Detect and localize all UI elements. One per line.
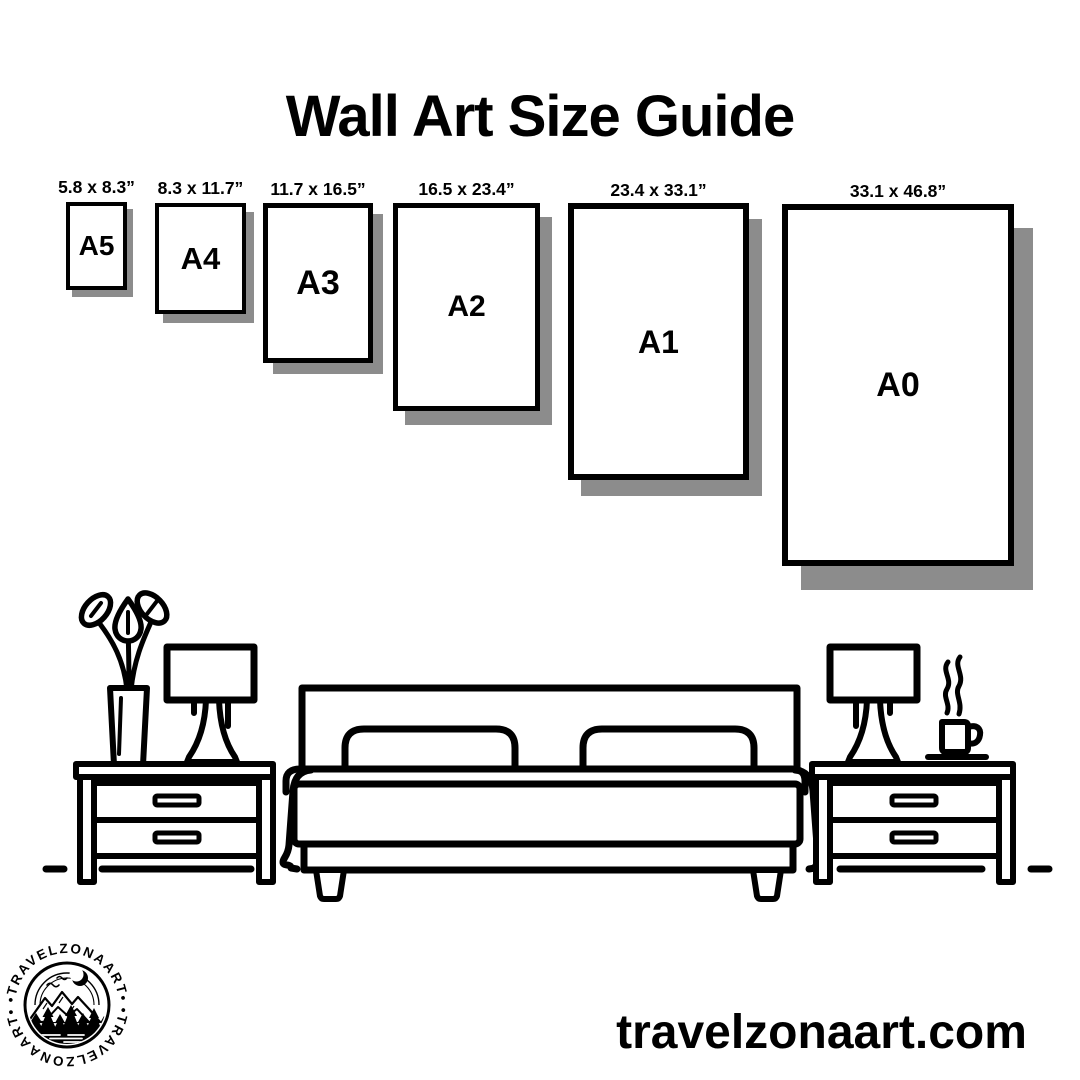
coffee-cup-icon [928, 657, 986, 757]
dimension-label: 8.3 x 11.7” [158, 178, 244, 199]
logo-badge-icon: •TRAVELZONAART• •TRAVELZONAART• [0, 935, 136, 1075]
drawer-handle [155, 833, 199, 842]
dimension-label: 33.1 x 46.8” [850, 181, 946, 202]
size-frame-a4: 8.3 x 11.7” A4 [155, 203, 246, 314]
size-frame-a0: 33.1 x 46.8” A0 [782, 204, 1014, 566]
bedroom-illustration [0, 570, 1080, 910]
brand-website: travelzonaart.com [563, 1005, 1080, 1060]
size-frame-a3: 11.7 x 16.5” A3 [263, 203, 373, 363]
page-title: Wall Art Size Guide [0, 83, 1080, 150]
size-frame-a2: 16.5 x 23.4” A2 [393, 203, 540, 411]
size-letter: A1 [638, 326, 679, 358]
bed-icon [283, 688, 823, 899]
dimension-label: 23.4 x 33.1” [610, 180, 706, 201]
dimension-label: 11.7 x 16.5” [270, 179, 365, 200]
table-lamp-icon [167, 647, 254, 762]
size-letter: A3 [296, 266, 339, 300]
dimension-label: 16.5 x 23.4” [418, 179, 514, 200]
size-frame-a5: 5.8 x 8.3” A5 [66, 202, 127, 290]
dimension-label: 5.8 x 8.3” [58, 177, 135, 198]
size-letter: A0 [876, 368, 919, 402]
nightstand-left-icon [76, 764, 273, 882]
size-frame-a1: 23.4 x 33.1” A1 [568, 203, 749, 480]
size-letter: A5 [79, 232, 115, 260]
drawer-handle [892, 833, 936, 842]
table-lamp-icon [830, 647, 917, 762]
plant-vase-icon [76, 587, 173, 765]
drawer-handle [155, 796, 199, 805]
size-letter: A4 [181, 243, 221, 274]
poster: Wall Art Size Guide 5.8 x 8.3” A5 8.3 x … [0, 0, 1080, 1080]
drawer-handle [892, 796, 936, 805]
nightstand-right-icon [812, 764, 1013, 882]
size-letter: A2 [447, 292, 485, 322]
